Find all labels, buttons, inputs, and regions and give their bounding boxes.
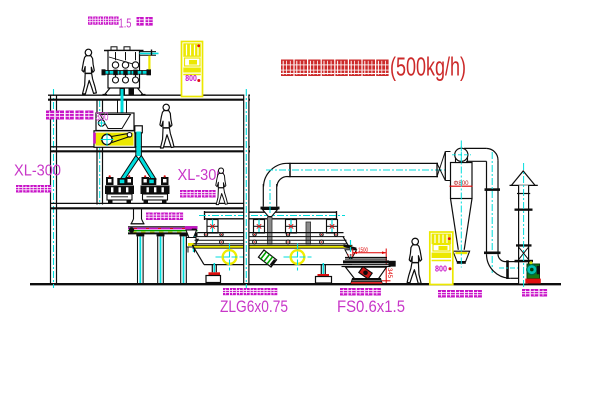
svg-text:1.5: 1.5 [119,15,132,30]
svg-text:350: 350 [96,112,109,124]
svg-text:800: 800 [435,265,447,274]
svg-text:1500: 1500 [358,247,368,254]
svg-text:ZLG6x0.75: ZLG6x0.75 [220,298,288,316]
svg-text:800: 800 [185,74,197,83]
svg-text:345: 345 [386,268,392,279]
svg-text:(500kg/h): (500kg/h) [390,54,466,82]
svg-text:XL-300: XL-300 [14,163,61,180]
svg-text:FS0.6x1.5: FS0.6x1.5 [337,298,405,316]
